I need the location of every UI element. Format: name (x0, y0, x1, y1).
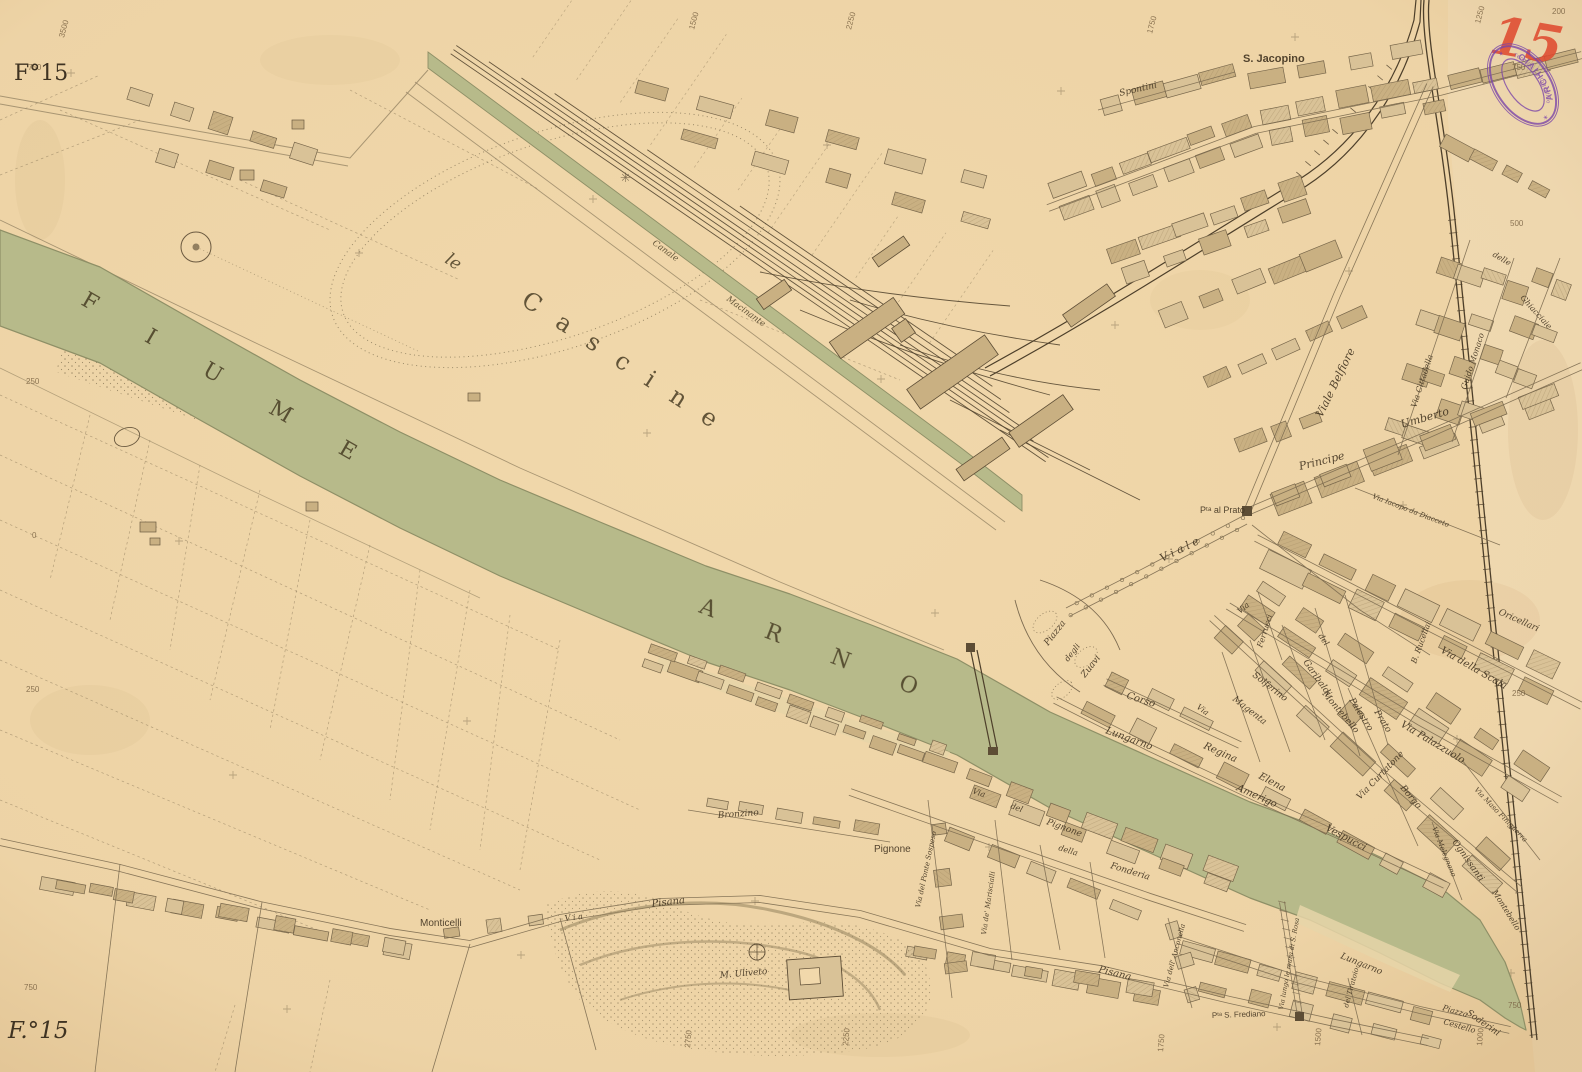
grid-number-0-32: 0 (32, 531, 37, 540)
sheet-number-top-left: F°15 (14, 61, 68, 86)
map-label-monticelli: Monticelli (420, 918, 462, 929)
map-canvas[interactable]: ✳ S. JacopinoSpontiniViale BelfioreVia C… (0, 0, 1582, 1072)
map-sheet: ✳ S. JacopinoSpontiniViale BelfioreVia C… (0, 0, 1582, 1072)
grid-number-500-1510: 500 (1510, 219, 1524, 228)
grid-number-250-1512: 250 (1512, 689, 1526, 698)
grid-number-750-1508: 750 (1508, 1001, 1522, 1010)
map-label-s-jacopino: S. Jacopino (1243, 53, 1305, 65)
map-label-pignone: Pignone (874, 844, 911, 855)
grid-number-1750-1163: 1750 (1156, 1033, 1167, 1052)
grid-number-250-26: 250 (26, 685, 40, 694)
grid-number-1500-1320: 1500 (1313, 1027, 1324, 1046)
grid-number-2750-690: 2750 (683, 1029, 694, 1048)
grid-number-750-24: 750 (24, 983, 38, 992)
grid-number-250-26: 250 (26, 377, 40, 386)
map-label-p-s-frediano: Pᵗᵃ S. Frediano (1212, 1009, 1266, 1020)
grid-number-2250-848: 2250 (841, 1027, 852, 1046)
grid-number-1000-1482: 1000 (1475, 1027, 1486, 1046)
map-label-p-al-prato: Pᵗᵃ al Prato (1200, 505, 1245, 515)
sheet-number-bottom-left: F.°15 (7, 1018, 68, 1044)
